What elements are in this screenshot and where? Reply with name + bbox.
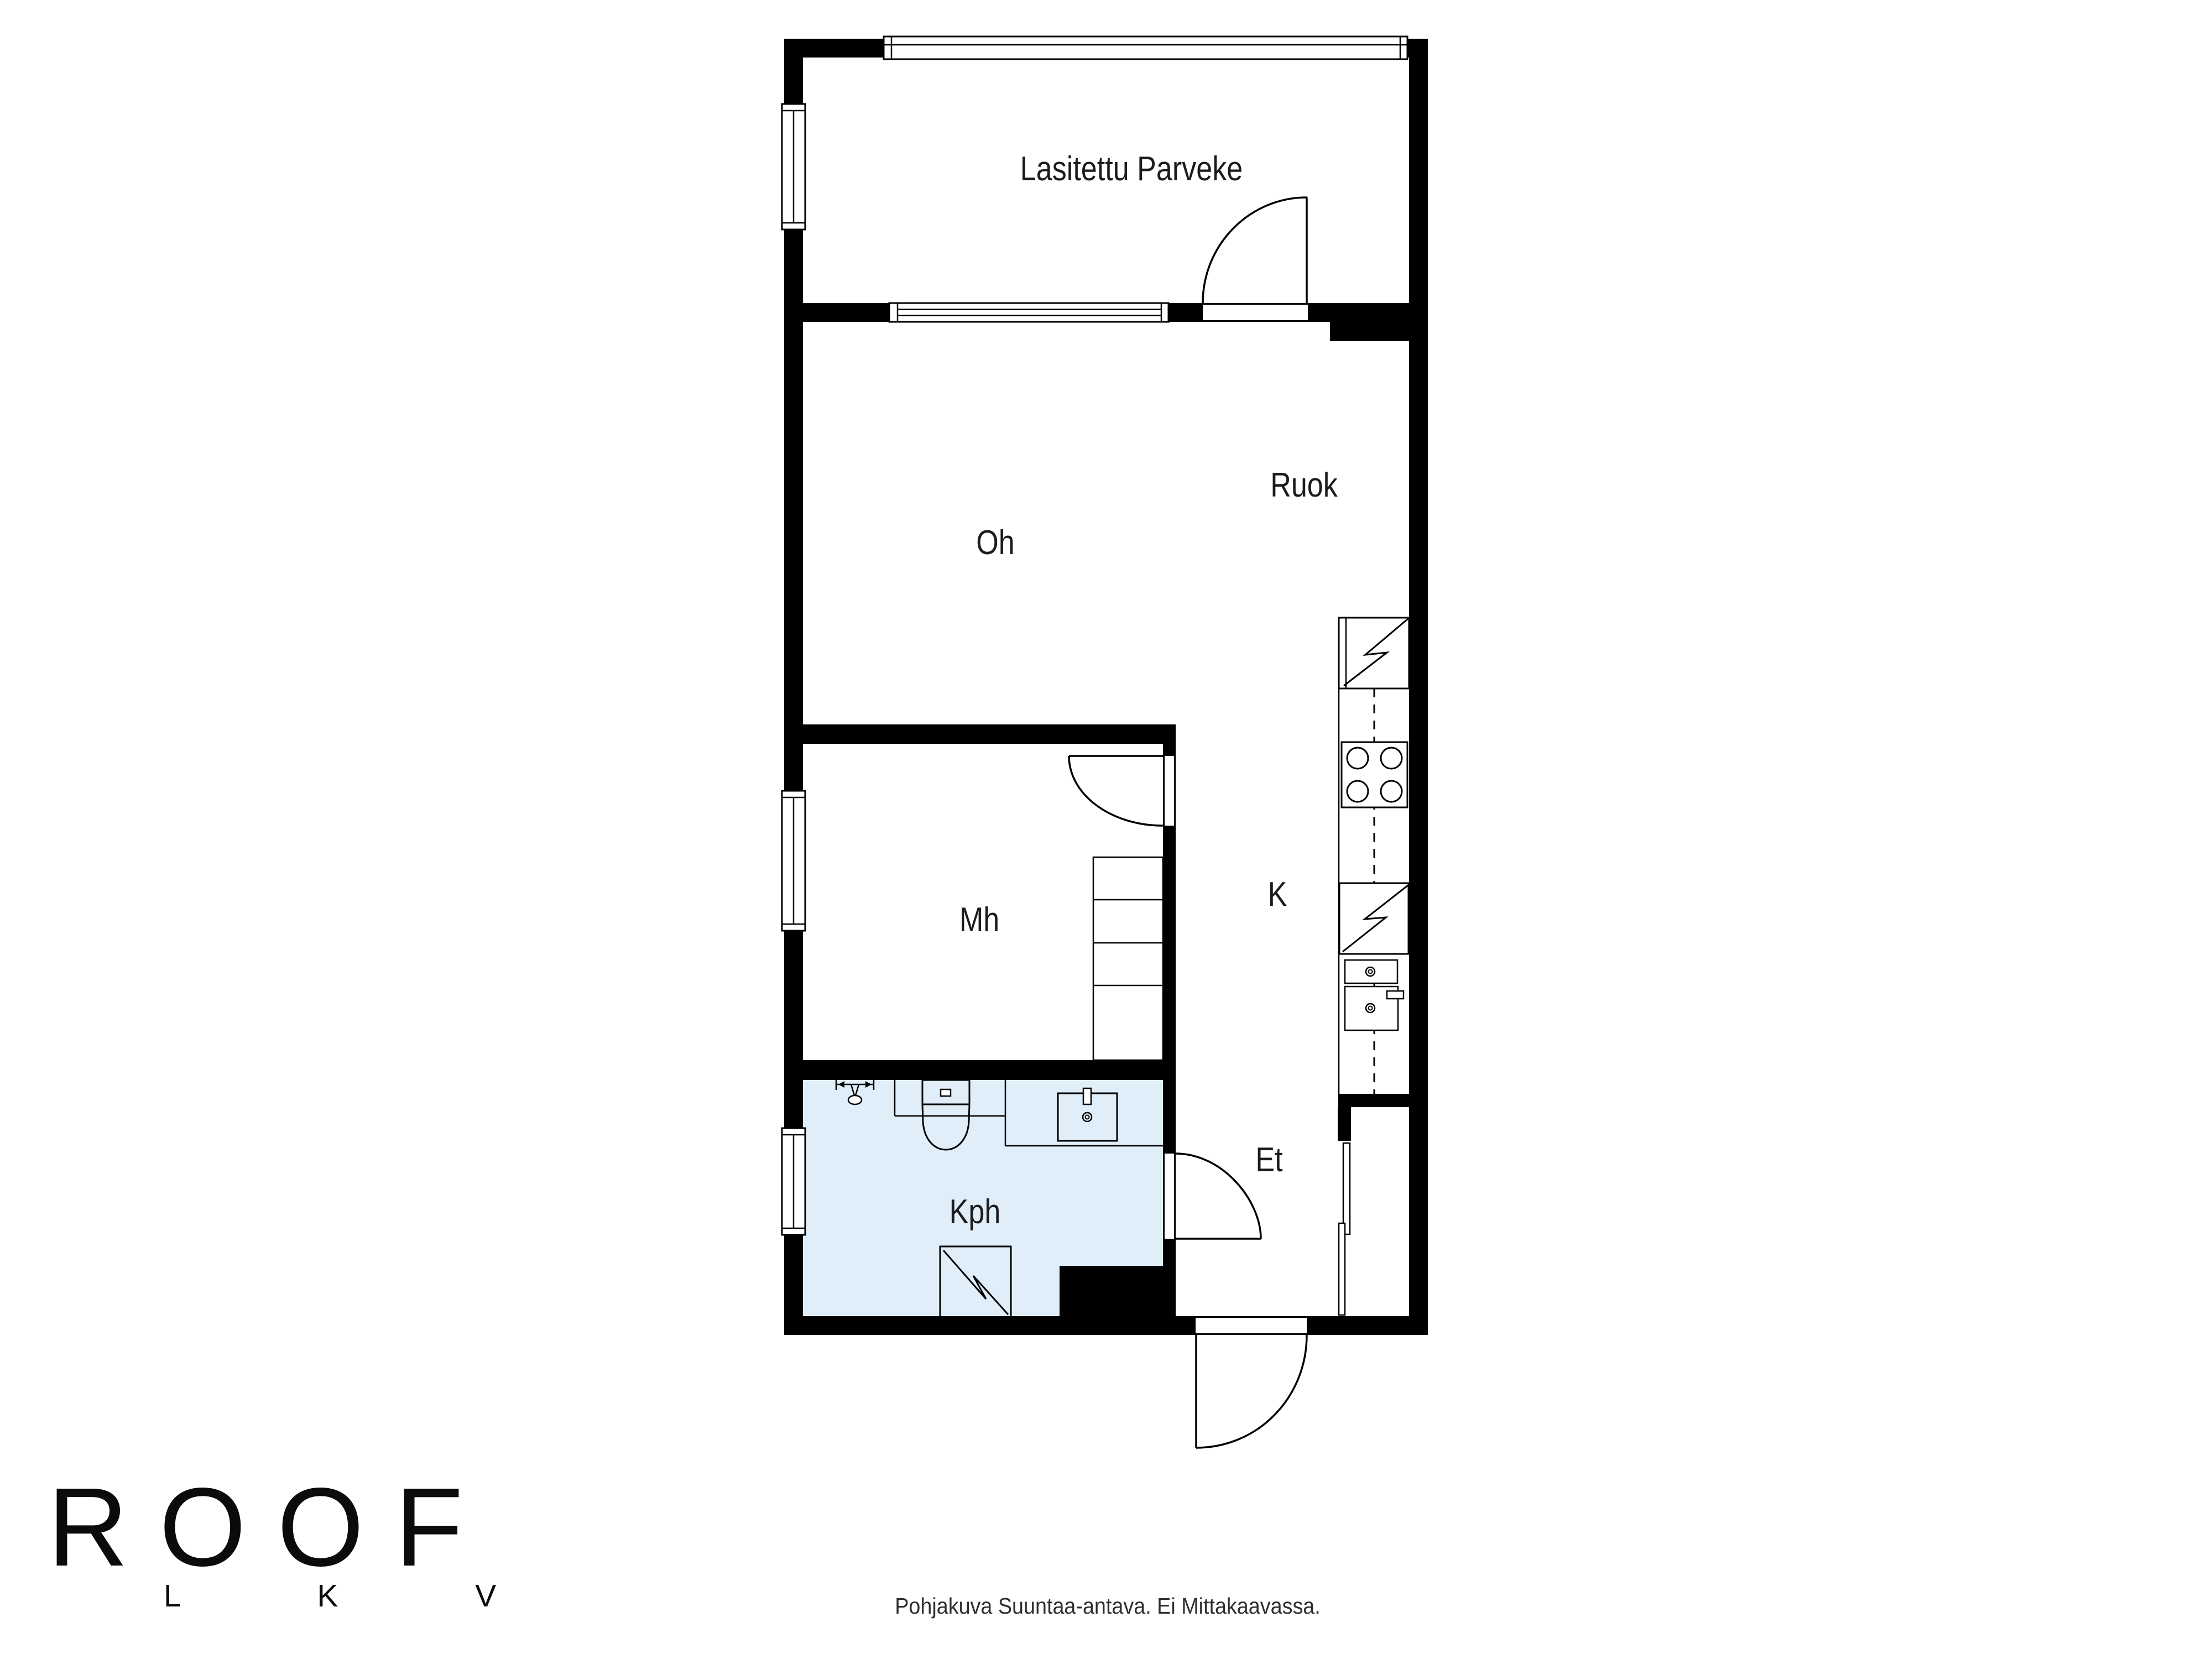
window-mh [782,791,805,931]
wall-alcove-stub [1338,1107,1351,1141]
room-label-et: Et [1255,1143,1282,1177]
wall-bottom [784,1316,1428,1335]
room-label-lasitettu-parveke: Lasitettu Parveke [1020,152,1243,186]
door-balcony [1203,197,1307,303]
wall-kitchen-stub [1338,1094,1409,1107]
kitchen-sink-icon [1345,960,1404,1030]
door-swing-arc [1069,756,1163,826]
door-front [1196,1335,1307,1448]
door-swing-arc [1196,1335,1307,1448]
room-label-ruok: Ruok [1270,468,1338,503]
stove-icon [1342,742,1407,807]
room-label-oh: Oh [976,526,1014,560]
room-label-mh: Mh [959,903,999,937]
fridge-icon [1339,618,1409,688]
door-swing-arc [1176,1154,1261,1239]
closet-icon [1093,857,1163,1060]
wall-right [1409,39,1428,1335]
room-label-k: K [1268,878,1287,912]
room-label-kph: Kph [950,1195,1001,1229]
window-kph [782,1128,805,1235]
kitchen-fittings [1339,618,1409,1094]
roof-logo-lkv: L K V [164,1580,560,1612]
window-balcony-top [884,36,1407,59]
door-mh [1069,756,1163,826]
wall-kph-block [1060,1266,1176,1318]
wall-mh-kph [784,1060,1176,1080]
wall-oh-mh [784,724,1176,744]
window-balcony-left [782,104,805,229]
wall-ruok-notch [1330,322,1409,341]
door-kph [1176,1154,1261,1239]
wardrobe-sliding-doors-icon [1339,1143,1350,1315]
disclaimer-text: Pohjakuva Suuntaa-antava. Ei Mittakaavas… [895,1593,1321,1620]
dishwasher-icon [1339,883,1408,954]
roof-logo: ROOF [48,1471,494,1583]
window-balcony-living [889,303,1168,322]
floorplan-drawing [0,0,2212,1659]
floorplan-page: Lasitettu Parveke Oh Ruok Mh K Et Kph RO… [0,0,2212,1659]
door-swing-arc [1203,197,1307,303]
